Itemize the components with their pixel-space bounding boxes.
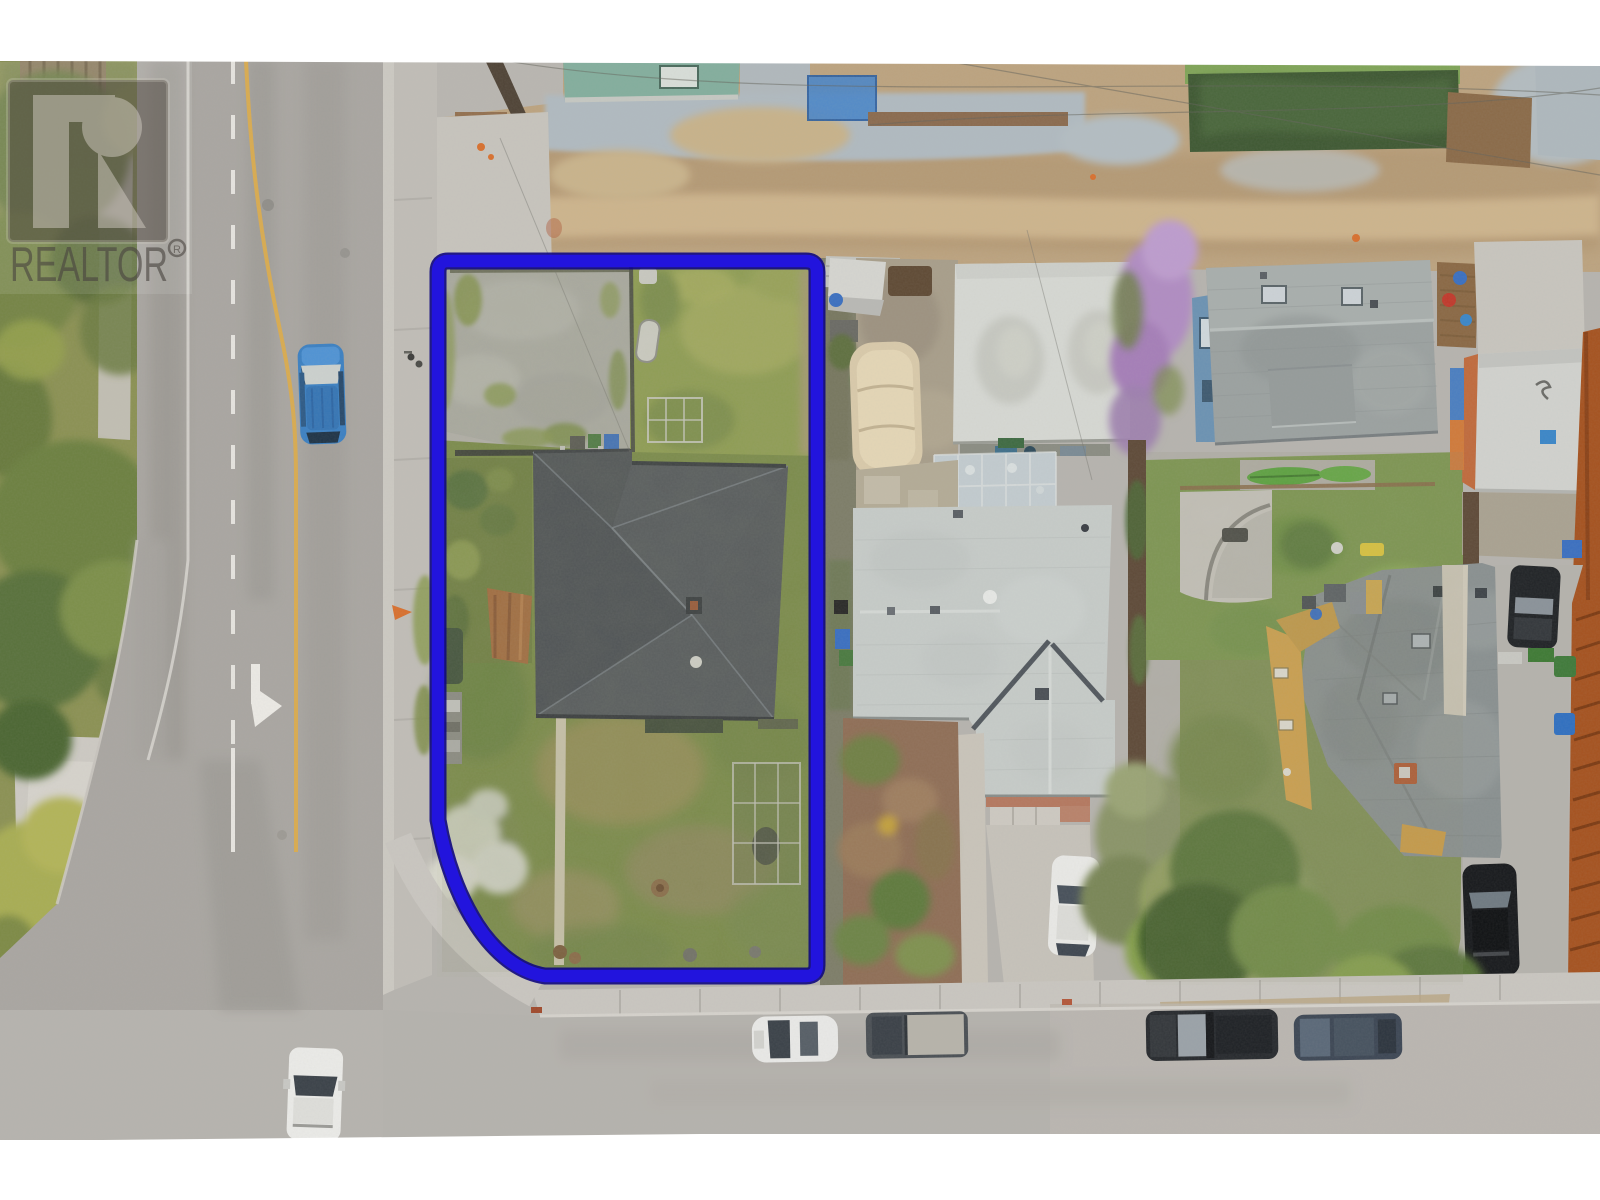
svg-text:R: R bbox=[173, 244, 181, 256]
svg-text:REALTOR: REALTOR bbox=[10, 238, 168, 292]
